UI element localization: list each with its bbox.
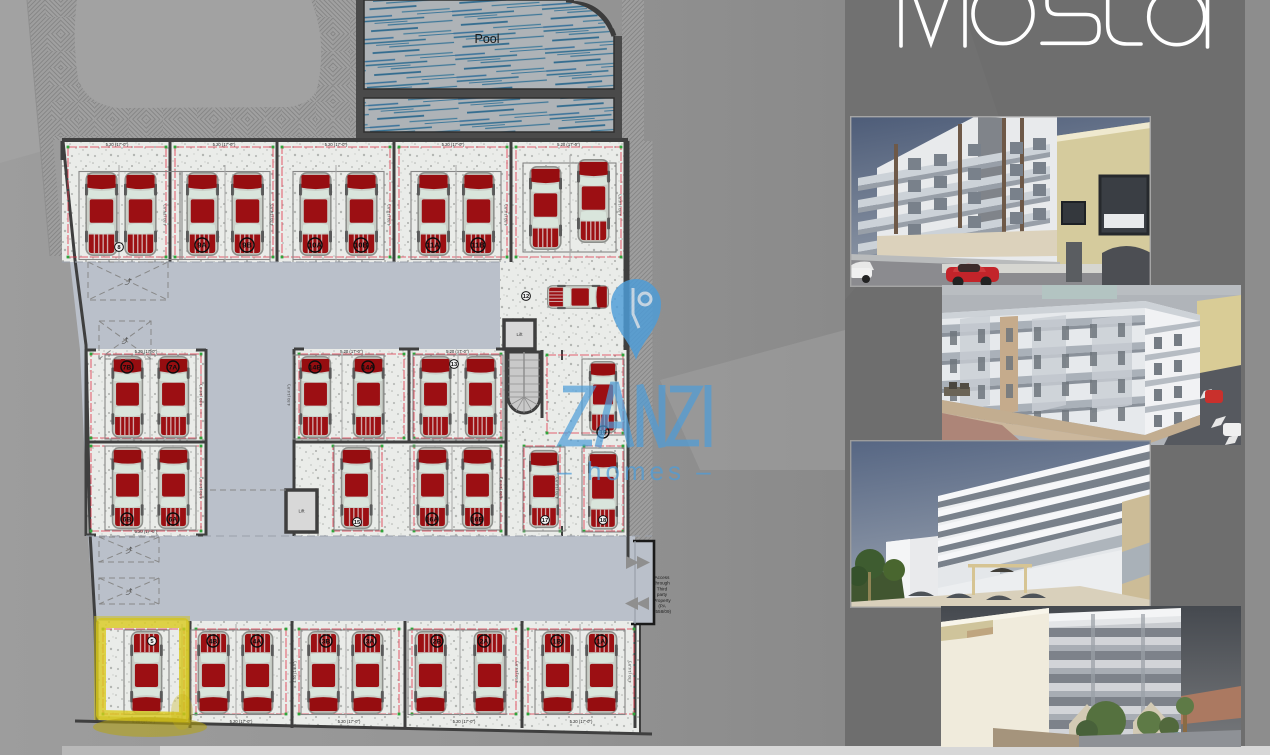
svg-text:4.50 (14'-9"): 4.50 (14'-9") — [498, 476, 503, 498]
svg-text:14B: 14B — [309, 364, 322, 371]
svg-text:7B: 7B — [123, 364, 132, 371]
svg-text:7A: 7A — [169, 364, 178, 371]
svg-text:4A: 4A — [253, 638, 262, 645]
svg-text:4.50 (14'-9"): 4.50 (14'-9") — [514, 660, 519, 682]
svg-text:through: through — [654, 581, 670, 586]
svg-text:17: 17 — [542, 518, 548, 524]
svg-text:1A: 1A — [597, 638, 606, 645]
svg-text:4.50 (14'-9"): 4.50 (14'-9") — [269, 203, 274, 225]
svg-text:4.50 (14'-9"): 4.50 (14'-9") — [386, 203, 391, 225]
svg-text:Third: Third — [657, 586, 668, 591]
svg-text:2558/09): 2558/09) — [653, 609, 672, 614]
svg-text:Property: Property — [653, 598, 671, 603]
svg-text:14A: 14A — [362, 364, 375, 371]
svg-text:16B: 16B — [471, 516, 484, 523]
svg-text:13: 13 — [451, 362, 458, 368]
svg-text:⤴: ⤴ — [125, 277, 132, 286]
svg-text:Lift: Lift — [516, 332, 523, 337]
svg-text:⤴: ⤴ — [126, 587, 133, 596]
svg-text:5.20 (17'-0"): 5.20 (17'-0") — [570, 719, 593, 724]
svg-text:5.20 (17'-0"): 5.20 (17'-0") — [135, 349, 158, 354]
svg-text:– homes –: – homes – — [557, 456, 714, 486]
svg-text:6B: 6B — [123, 516, 132, 523]
svg-text:4.50 (14'-9"): 4.50 (14'-9") — [198, 476, 203, 498]
svg-text:2A: 2A — [480, 638, 489, 645]
svg-text:3B: 3B — [322, 638, 331, 645]
svg-text:9A: 9A — [197, 241, 207, 250]
svg-text:10B: 10B — [354, 241, 368, 250]
svg-text:⤴: ⤴ — [122, 336, 129, 345]
svg-text:⤴: ⤴ — [126, 546, 133, 555]
svg-text:10A: 10A — [308, 241, 322, 250]
svg-text:11A: 11A — [426, 241, 440, 250]
svg-text:5.20 (17'-0"): 5.20 (17'-0") — [325, 142, 348, 147]
svg-text:5.20 (17'-0"): 5.20 (17'-0") — [453, 719, 476, 724]
svg-text:4.50 (14'-9"): 4.50 (14'-9") — [198, 383, 203, 405]
svg-text:5.20 (17'-0"): 5.20 (17'-0") — [106, 142, 129, 147]
svg-text:Pool: Pool — [474, 32, 499, 46]
svg-text:Lift: Lift — [298, 509, 305, 514]
svg-text:1B: 1B — [553, 638, 562, 645]
svg-text:party: party — [657, 592, 668, 597]
svg-text:Access: Access — [655, 575, 671, 580]
svg-text:5.20 (17'-0"): 5.20 (17'-0") — [213, 142, 236, 147]
svg-text:5.20 (17'-0"): 5.20 (17'-0") — [230, 719, 253, 724]
svg-text:5.20 (17'-0"): 5.20 (17'-0") — [442, 142, 465, 147]
svg-text:4.50 (14'-9"): 4.50 (14'-9") — [627, 660, 632, 682]
svg-text:3A: 3A — [366, 638, 375, 645]
svg-text:6A: 6A — [169, 516, 178, 523]
svg-text:4.50 (14'-9"): 4.50 (14'-9") — [292, 660, 297, 682]
svg-text:5.20 (17'-0"): 5.20 (17'-0") — [557, 142, 580, 147]
svg-text:5.20 (17'-0"): 5.20 (17'-0") — [338, 719, 361, 724]
svg-text:(PA: (PA — [658, 604, 666, 609]
svg-text:5.20 (17'-0"): 5.20 (17'-0") — [340, 349, 363, 354]
svg-text:9B: 9B — [242, 241, 252, 250]
svg-text:4B: 4B — [209, 638, 218, 645]
svg-text:4.50 (14'-9"): 4.50 (14'-9") — [617, 193, 622, 215]
svg-text:12: 12 — [523, 294, 529, 300]
svg-text:15: 15 — [354, 520, 361, 526]
svg-text:4.50 (14'-9"): 4.50 (14'-9") — [503, 203, 508, 225]
svg-text:4.50 (14'-9"): 4.50 (14'-9") — [286, 383, 291, 405]
svg-text:11B: 11B — [471, 241, 485, 250]
svg-text:2B: 2B — [433, 638, 442, 645]
svg-text:18: 18 — [600, 518, 607, 524]
svg-text:16A: 16A — [426, 516, 439, 523]
svg-text:4.50 (14'-9"): 4.50 (14'-9") — [162, 203, 167, 225]
